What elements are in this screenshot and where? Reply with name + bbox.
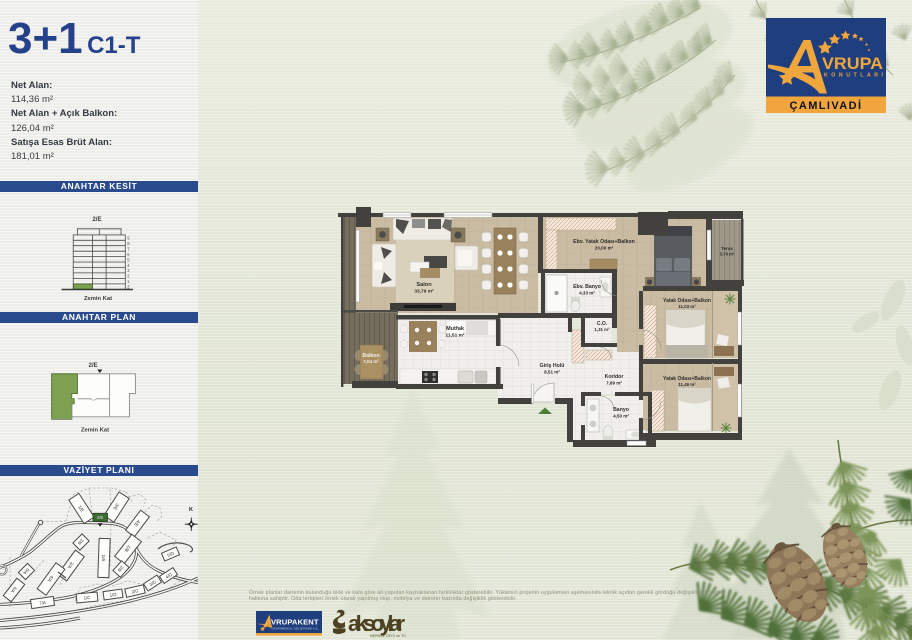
svg-text:KONUTLARI: KONUTLARI bbox=[824, 73, 884, 79]
svg-text:K: K bbox=[189, 507, 193, 513]
svg-text:2/E: 2/E bbox=[88, 363, 97, 369]
svg-text:1/D: 1/D bbox=[109, 592, 116, 598]
svg-text:Zemin Kat: Zemin Kat bbox=[81, 428, 109, 434]
svg-text:11,03 m²: 11,03 m² bbox=[678, 304, 696, 309]
svg-text:2/E: 2/E bbox=[97, 515, 104, 520]
svg-text:3: 3 bbox=[127, 268, 130, 273]
svg-text:1,31 m²: 1,31 m² bbox=[594, 327, 610, 332]
svg-text:Mutfak: Mutfak bbox=[446, 326, 465, 332]
svg-text:33,79 m²: 33,79 m² bbox=[414, 289, 434, 295]
svg-text:VRUPAKENT: VRUPAKENT bbox=[271, 618, 319, 627]
svg-text:7/A: 7/A bbox=[39, 600, 46, 606]
svg-text:2/E: 2/E bbox=[92, 216, 101, 223]
svg-text:Ebv. Banyo: Ebv. Banyo bbox=[573, 284, 601, 290]
svg-text:3,74 m²: 3,74 m² bbox=[720, 252, 735, 257]
svg-text:5: 5 bbox=[127, 257, 130, 262]
svg-text:Salon: Salon bbox=[416, 282, 432, 288]
svg-text:20,00 m²: 20,00 m² bbox=[595, 246, 614, 251]
svg-text:8,51 m²: 8,51 m² bbox=[544, 370, 560, 375]
svg-text:Zemin Kat: Zemin Kat bbox=[84, 296, 112, 302]
svg-text:aksoylar: aksoylar bbox=[348, 611, 405, 636]
svg-text:7: 7 bbox=[127, 246, 130, 251]
svg-text:1/A: 1/A bbox=[101, 554, 106, 562]
svg-text:4: 4 bbox=[127, 263, 130, 268]
svg-text:Giriş Holü: Giriş Holü bbox=[540, 363, 565, 369]
svg-text:Koridor: Koridor bbox=[605, 374, 624, 380]
svg-text:Ebv. Yatak Odası+Balkon: Ebv. Yatak Odası+Balkon bbox=[573, 239, 635, 245]
svg-text:MERKEZ OFİS ve TIC. İY.A.Ş.: MERKEZ OFİS ve TIC. İY.A.Ş. bbox=[370, 633, 406, 638]
svg-text:Teras: Teras bbox=[721, 246, 733, 251]
svg-text:4,50 m²: 4,50 m² bbox=[613, 414, 629, 419]
svg-text:2: 2 bbox=[127, 274, 130, 279]
svg-text:1/C: 1/C bbox=[83, 595, 90, 601]
svg-text:1: 1 bbox=[127, 279, 130, 284]
svg-text:9: 9 bbox=[127, 236, 130, 241]
svg-text:6: 6 bbox=[127, 252, 130, 257]
svg-text:8: 8 bbox=[127, 241, 130, 246]
svg-text:11,51 m²: 11,51 m² bbox=[446, 333, 465, 339]
svg-text:VRUPA: VRUPA bbox=[822, 55, 883, 73]
svg-text:11,49 m²: 11,49 m² bbox=[678, 382, 696, 387]
svg-text:7,04 m²: 7,04 m² bbox=[363, 359, 379, 364]
svg-text:Banyo: Banyo bbox=[613, 407, 629, 413]
svg-text:7,89 m²: 7,89 m² bbox=[606, 381, 622, 386]
svg-text:ÇAMLIVADİ: ÇAMLIVADİ bbox=[790, 99, 863, 112]
svg-text:4,33 m²: 4,33 m² bbox=[579, 291, 595, 296]
